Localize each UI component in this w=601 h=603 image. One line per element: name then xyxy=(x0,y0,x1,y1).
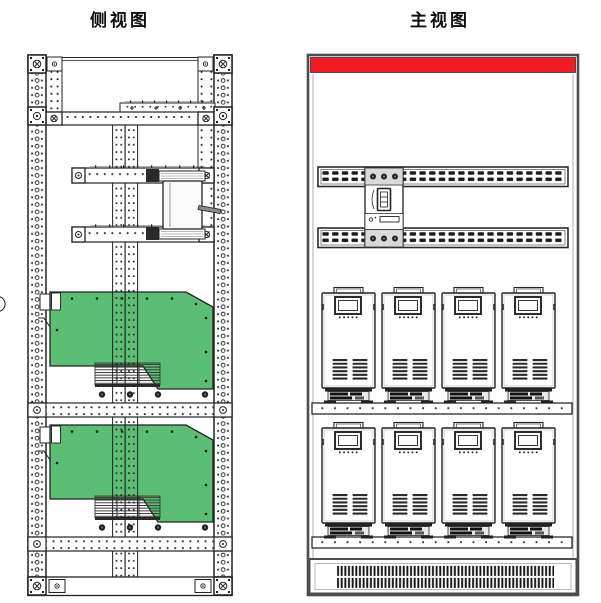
power-module-front xyxy=(502,288,555,404)
breaker-front-view xyxy=(365,168,403,247)
cabinet-top-stripe xyxy=(311,58,576,73)
rack-rail-left xyxy=(28,55,46,595)
module-shelf-front xyxy=(312,537,572,548)
power-module-front xyxy=(382,423,435,539)
side-view xyxy=(0,55,232,596)
power-module-front xyxy=(382,288,435,404)
busbar-row xyxy=(318,167,568,187)
drawing-canvas: 侧视图 主视图 xyxy=(0,0,601,603)
module-shelf-side xyxy=(28,403,232,417)
ventilation-grille xyxy=(310,559,577,594)
module-shelf-front xyxy=(312,403,572,414)
rack-rail-right xyxy=(214,55,232,595)
front-view xyxy=(308,55,578,595)
technical-drawing xyxy=(0,0,601,603)
item-callout xyxy=(0,296,5,311)
power-module-front xyxy=(442,288,495,404)
power-module-front xyxy=(442,423,495,539)
module-shelf-side xyxy=(28,537,232,551)
power-module-front xyxy=(502,423,555,539)
power-module-front xyxy=(322,423,375,539)
bottom-frame xyxy=(28,577,232,596)
busbar-row xyxy=(318,228,568,248)
power-module-front xyxy=(322,288,375,404)
